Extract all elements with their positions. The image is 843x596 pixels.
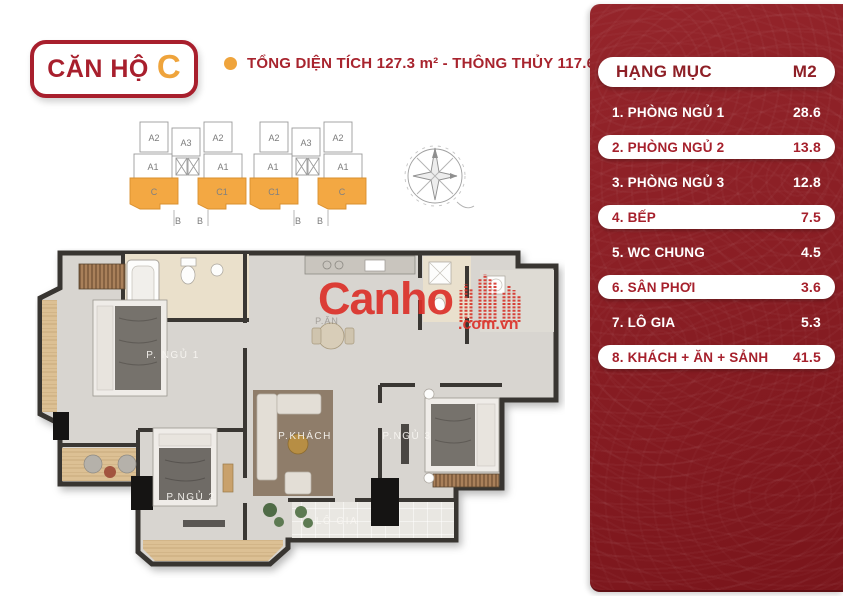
apartment-badge: CĂN HỘ C xyxy=(30,40,198,98)
room-label-bedroom3: P.NGỦ 3 xyxy=(382,429,431,442)
page: CĂN HỘ C TỔNG DIỆN TÍCH 127.3 m² - THÔNG… xyxy=(0,0,843,596)
table-rows: 1. PHÒNG NGỦ 1 28.6 2. PHÒNG NGỦ 2 13.8 … xyxy=(590,100,843,369)
wardrobe xyxy=(433,474,499,487)
living-room-furniture xyxy=(253,390,333,496)
keyplan-unit-label: C1 xyxy=(216,187,228,197)
wardrobe xyxy=(79,264,125,289)
keyplan-unit-label: A2 xyxy=(212,133,223,143)
row-value: 7.5 xyxy=(801,209,821,225)
keyplan-unit-label: B xyxy=(175,216,181,226)
table-row: 7. LÔ GIA 5.3 xyxy=(598,310,835,334)
keyplan-unit-label: A2 xyxy=(148,133,159,143)
keyplan-unit-label: A1 xyxy=(267,162,278,172)
row-label: 7. LÔ GIA xyxy=(612,315,675,330)
badge-title: CĂN HỘ xyxy=(47,55,149,84)
total-area-subtitle: TỔNG DIỆN TÍCH 127.3 m² - THÔNG THỦY 117… xyxy=(224,55,618,72)
keyplan-unit-label: C xyxy=(151,187,158,197)
keyplan-unit-label: B xyxy=(295,216,301,226)
keyplan-unit-label: A1 xyxy=(337,162,348,172)
row-value: 13.8 xyxy=(793,139,821,155)
table-row: 5. WC CHUNG 4.5 xyxy=(598,240,835,264)
orange-dot-icon xyxy=(224,57,237,70)
table-row: 6. SÂN PHƠI 3.6 xyxy=(598,275,835,299)
table-row: 1. PHÒNG NGỦ 1 28.6 xyxy=(598,100,835,124)
row-label: 1. PHÒNG NGỦ 1 xyxy=(612,105,724,120)
row-label: 2. PHÒNG NGỦ 2 xyxy=(612,140,724,155)
keyplan-unit-label: C xyxy=(339,187,346,197)
row-value: 41.5 xyxy=(793,349,821,365)
row-label: 5. WC CHUNG xyxy=(612,245,705,260)
row-label: 6. SÂN PHƠI xyxy=(612,280,695,295)
keyplan-unit-label: A3 xyxy=(300,138,311,148)
room-label-dining: P.ĂN xyxy=(315,316,339,326)
row-label: 8. KHÁCH + ĂN + SẢNH xyxy=(612,350,768,365)
row-value: 28.6 xyxy=(793,104,821,120)
keyplan-unit-label: B xyxy=(317,216,323,226)
room-label-loggia: LÔ GIA xyxy=(316,514,358,527)
table-header-label: HẠNG MỤC xyxy=(616,62,712,82)
keyplan-unit-label: A2 xyxy=(268,133,279,143)
keyplan-unit-label: A3 xyxy=(180,138,191,148)
room-label-bedroom1: P. NGỦ 1 xyxy=(146,348,200,361)
row-label: 3. PHÒNG NGỦ 3 xyxy=(612,175,724,190)
room-label-bedroom2: P.NGỦ 2 xyxy=(166,490,215,503)
row-label: 4. BẾP xyxy=(612,210,656,225)
table-header: HẠNG MỤC M2 xyxy=(598,57,835,87)
key-plan-diagram: A2 A3 A2 A1 A1 C C1 B B A2 A3 A2 A1 A1 C… xyxy=(120,118,370,232)
row-value: 12.8 xyxy=(793,174,821,190)
floor-plan: P. NGỦ 1 P.NGỦ 2 P.KHÁCH P.NGỦ 3 LÔ GIA … xyxy=(35,248,565,578)
table-row: 2. PHÒNG NGỦ 2 13.8 xyxy=(598,135,835,159)
row-value: 5.3 xyxy=(801,314,821,330)
keyplan-unit-label: A2 xyxy=(332,133,343,143)
bedroom2-balcony-floor xyxy=(143,540,283,561)
total-area-text: TỔNG DIỆN TÍCH 127.3 m² - THÔNG THỦY 117… xyxy=(247,55,618,72)
floor-plan-area: P. NGỦ 1 P.NGỦ 2 P.KHÁCH P.NGỦ 3 LÔ GIA … xyxy=(35,248,565,578)
keyplan-unit-label: C1 xyxy=(268,187,280,197)
kitchen-counter xyxy=(305,256,415,274)
keyplan-unit-label: A1 xyxy=(217,162,228,172)
room-label-living: P.KHÁCH xyxy=(278,429,332,442)
keyplan-unit-label: A1 xyxy=(147,162,158,172)
area-table-panel: HẠNG MỤC M2 1. PHÒNG NGỦ 1 28.6 2. PHÒNG… xyxy=(590,4,843,592)
left-balcony-floor xyxy=(42,300,57,412)
row-value: 3.6 xyxy=(801,279,821,295)
table-header-unit: M2 xyxy=(793,62,817,82)
badge-unit-letter: C xyxy=(157,48,181,86)
keyplan-unit-label: B xyxy=(197,216,203,226)
table-row: 4. BẾP 7.5 xyxy=(598,205,835,229)
row-value: 4.5 xyxy=(801,244,821,260)
table-row: 8. KHÁCH + ĂN + SẢNH 41.5 xyxy=(598,345,835,369)
compass-icon xyxy=(398,136,476,222)
table-row: 3. PHÒNG NGỦ 3 12.8 xyxy=(598,170,835,194)
